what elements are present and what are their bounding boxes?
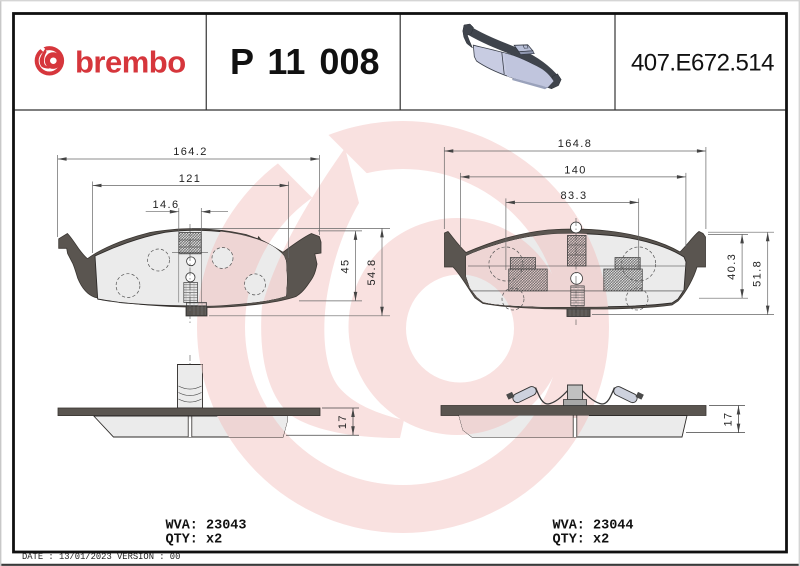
svg-text:54.8: 54.8	[366, 258, 378, 285]
svg-text:140: 140	[564, 164, 587, 176]
svg-text:QTY: x2: QTY: x2	[166, 533, 223, 548]
svg-text:WVA: 23043: WVA: 23043	[166, 519, 247, 534]
svg-text:45: 45	[340, 258, 352, 273]
svg-text:40.3: 40.3	[726, 253, 738, 280]
svg-text:QTY: x2: QTY: x2	[553, 533, 610, 548]
svg-text:164.2: 164.2	[173, 146, 208, 158]
svg-text:P 11 008: P 11 008	[230, 41, 380, 82]
svg-text:121: 121	[179, 173, 202, 185]
svg-text:164.8: 164.8	[558, 138, 593, 150]
svg-text:WVA: 23044: WVA: 23044	[553, 519, 634, 534]
svg-text:17: 17	[337, 414, 349, 429]
svg-text:17: 17	[723, 411, 735, 426]
svg-text:14.6: 14.6	[152, 199, 179, 211]
svg-text:83.3: 83.3	[560, 190, 587, 202]
svg-text:407.E672.514: 407.E672.514	[631, 50, 774, 77]
svg-text:brembo: brembo	[75, 45, 186, 80]
svg-text:51.8: 51.8	[752, 260, 764, 287]
